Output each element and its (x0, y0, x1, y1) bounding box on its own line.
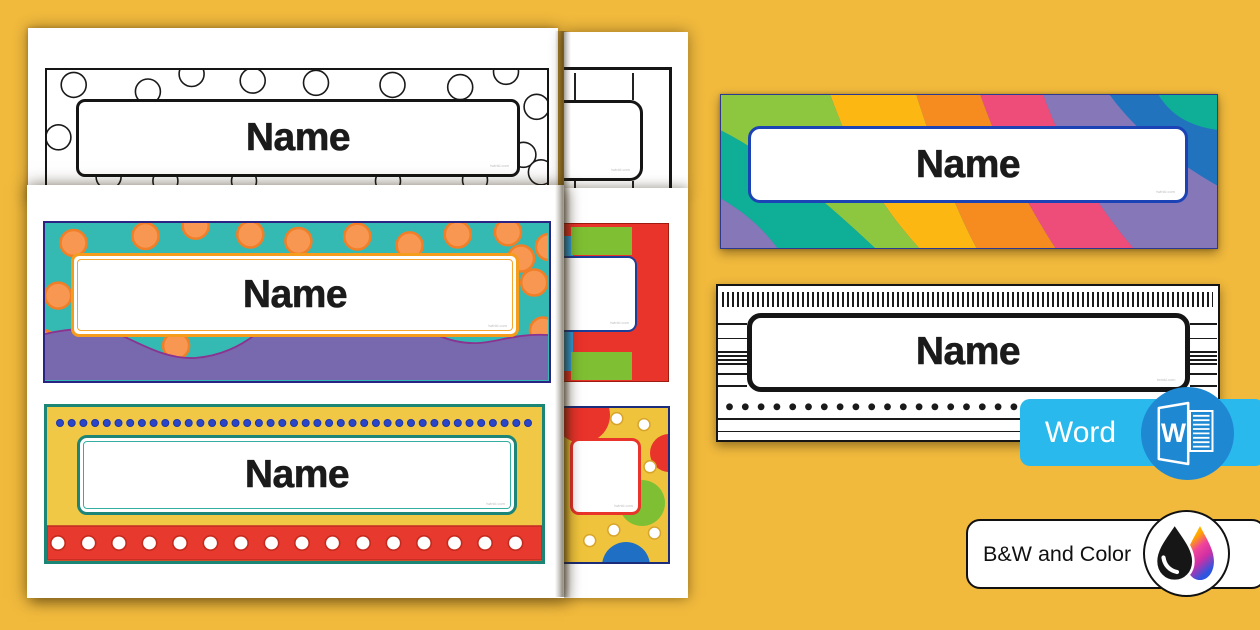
svg-text:W: W (1161, 418, 1186, 448)
